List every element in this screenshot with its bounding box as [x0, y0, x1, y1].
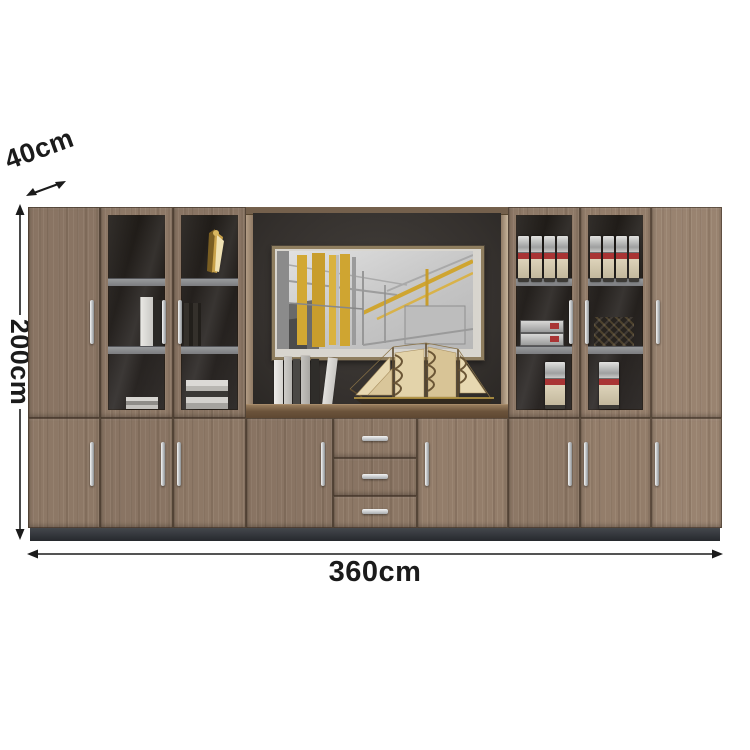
white-book: [140, 297, 153, 346]
file-binder: [544, 236, 555, 282]
dark-books: [184, 303, 201, 346]
glass-shelf: [588, 346, 643, 354]
file-binder: [518, 236, 529, 282]
file-binder: [599, 362, 619, 409]
gold-sculpture: [203, 227, 227, 275]
door-handle: [90, 442, 94, 486]
door-handle: [161, 442, 165, 486]
door-handle: [178, 300, 182, 344]
file-binder: [557, 236, 568, 282]
glass-shelf: [516, 346, 572, 354]
file-binder: [616, 236, 627, 282]
lower-door: [417, 418, 508, 528]
door-handle: [585, 300, 589, 344]
flat-book-stack: [126, 397, 158, 409]
upper-door-right-solid: [651, 207, 722, 418]
flat-binder: [520, 333, 564, 346]
lower-door: [246, 418, 333, 528]
woven-decor: [594, 317, 634, 346]
door-handle: [90, 300, 94, 344]
lower-door: [173, 418, 246, 528]
door-handle: [569, 300, 573, 344]
drawer-handle: [362, 436, 388, 441]
cabinet-plinth: [30, 528, 720, 541]
depth-dimension-label: 40cm: [1, 123, 78, 176]
glass-shelf: [181, 346, 238, 354]
depth-dimension-arrow: [24, 176, 68, 200]
door-handle: [321, 442, 325, 486]
glass-shelf: [108, 278, 165, 286]
file-binder: [590, 236, 601, 282]
product-image: 40cm 200cm 360cm: [0, 0, 750, 750]
door-handle: [162, 300, 166, 344]
door-handle: [568, 442, 572, 486]
lower-door: [651, 418, 722, 528]
file-binder: [531, 236, 542, 282]
door-handle: [584, 442, 588, 486]
drawer-handle: [362, 509, 388, 514]
width-dimension-label: 360cm: [280, 556, 470, 589]
glass-shelf: [181, 278, 238, 286]
lower-door: [580, 418, 651, 528]
door-handle: [656, 300, 660, 344]
white-book-stack: [186, 380, 228, 409]
wall-art-image: [277, 251, 473, 349]
door-handle: [655, 442, 659, 486]
file-binder: [545, 362, 565, 409]
center-side-panel-left: [246, 207, 253, 418]
door-handle: [177, 442, 181, 486]
door-handle: [425, 442, 429, 486]
file-binder: [629, 236, 639, 282]
glass-shelf: [108, 346, 165, 354]
flat-binder: [520, 320, 564, 333]
file-binder: [603, 236, 614, 282]
center-side-panel-right: [501, 207, 508, 418]
drawer-handle: [362, 474, 388, 479]
